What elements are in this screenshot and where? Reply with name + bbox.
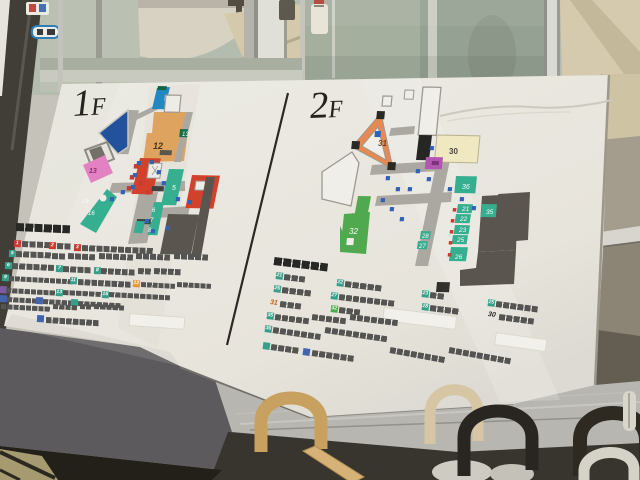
svg-text:27: 27	[418, 244, 426, 250]
svg-text:21: 21	[461, 206, 470, 213]
svg-text:32: 32	[349, 227, 358, 236]
svg-text:28: 28	[421, 234, 429, 240]
svg-text:15: 15	[82, 199, 89, 205]
svg-text:26: 26	[454, 254, 463, 261]
svg-text:22: 22	[459, 216, 468, 223]
svg-text:13: 13	[182, 132, 189, 138]
svg-text:16: 16	[88, 211, 95, 217]
svg-text:35: 35	[486, 209, 494, 216]
svg-text:23: 23	[458, 227, 467, 234]
svg-text:36: 36	[462, 184, 470, 191]
svg-text:25: 25	[456, 237, 465, 244]
svg-text:31: 31	[378, 139, 387, 148]
svg-text:5: 5	[172, 185, 176, 192]
svg-text:12: 12	[153, 141, 163, 151]
svg-text:13: 13	[89, 168, 97, 175]
svg-text:30: 30	[449, 147, 458, 156]
